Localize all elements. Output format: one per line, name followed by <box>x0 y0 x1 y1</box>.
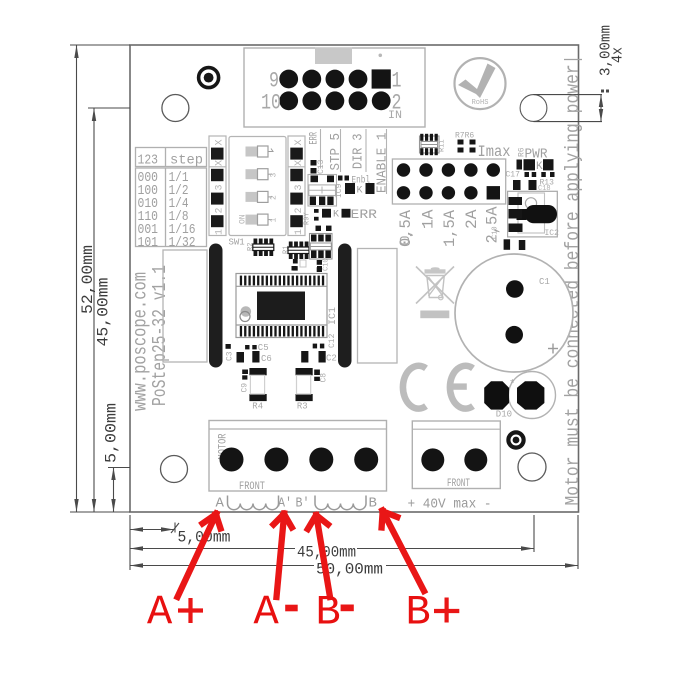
svg-text:45,00mm: 45,00mm <box>95 278 113 347</box>
svg-text:C3: C3 <box>226 351 235 361</box>
svg-text:B: B <box>369 496 377 512</box>
svg-text:Motor must be connected before: Motor must be connected before applying … <box>562 55 584 506</box>
svg-text:R9Y: R9Y <box>304 212 312 225</box>
svg-text:C1: C1 <box>539 277 550 287</box>
svg-text:101: 101 <box>138 235 159 251</box>
svg-text:5,00mm: 5,00mm <box>103 403 121 463</box>
svg-text:C17: C17 <box>506 171 521 180</box>
svg-text:PoStep25-32 v1.1: PoStep25-32 v1.1 <box>149 265 171 406</box>
svg-text:3: 3 <box>294 184 305 190</box>
svg-text:Imax: Imax <box>478 143 511 161</box>
svg-text:FRONT: FRONT <box>239 481 265 493</box>
svg-text:R4: R4 <box>252 402 263 412</box>
svg-text:C5: C5 <box>258 343 269 353</box>
svg-text:2: 2 <box>215 207 226 213</box>
svg-text:C13: C13 <box>317 159 326 174</box>
svg-text:0,5A: 0,5A <box>397 210 415 247</box>
svg-text:*: * <box>509 379 516 391</box>
svg-text:1: 1 <box>215 229 226 235</box>
svg-text:C8: C8 <box>320 373 329 383</box>
svg-text:ERR: ERR <box>309 132 321 145</box>
svg-text:STP 5: STP 5 <box>328 133 344 171</box>
svg-text:B: B <box>406 589 431 637</box>
svg-text:A: A <box>147 589 173 637</box>
svg-text:C12: C12 <box>328 333 337 348</box>
svg-text:K: K <box>333 210 339 221</box>
svg-text:C9: C9 <box>241 383 250 393</box>
svg-text:C2: C2 <box>326 354 337 364</box>
svg-text:2A: 2A <box>463 209 481 229</box>
svg-text:K: K <box>357 186 363 197</box>
svg-text:D10: D10 <box>496 410 512 420</box>
svg-text:ENABLE 1: ENABLE 1 <box>375 133 391 194</box>
svg-text:FRONT: FRONT <box>447 478 470 490</box>
svg-text:ERR: ERR <box>351 208 378 222</box>
svg-text:1,5A: 1,5A <box>441 210 459 247</box>
svg-text:4x: 4x <box>610 47 627 63</box>
svg-text:C6: C6 <box>261 354 272 364</box>
svg-text:B': B' <box>296 496 310 512</box>
svg-text:DIR 3: DIR 3 <box>351 134 367 170</box>
svg-text:step: step <box>170 153 203 169</box>
svg-text:1: 1 <box>270 218 279 223</box>
svg-text:C10: C10 <box>492 226 500 239</box>
svg-text:1: 1 <box>294 229 305 235</box>
svg-text:B: B <box>316 589 341 637</box>
svg-text:X: X <box>215 160 226 166</box>
svg-text:1/32: 1/32 <box>169 235 196 251</box>
svg-text:SW1: SW1 <box>229 238 245 248</box>
svg-text:IC1: IC1 <box>328 307 339 325</box>
svg-text:R3: R3 <box>297 402 308 412</box>
svg-text:10: 10 <box>261 91 281 116</box>
svg-text:3: 3 <box>215 184 226 190</box>
svg-text:R7R6: R7R6 <box>455 132 474 141</box>
svg-text:A: A <box>254 589 280 637</box>
svg-text:A': A' <box>278 496 292 512</box>
svg-text:+ 40V max -: + 40V max - <box>408 497 492 513</box>
svg-text:123: 123 <box>138 153 159 169</box>
svg-text:2: 2 <box>270 195 279 200</box>
svg-text:C10: C10 <box>323 258 331 271</box>
svg-text:IC9: IC9 <box>335 183 344 198</box>
svg-text:K: K <box>536 161 543 173</box>
svg-text:RoHS: RoHS <box>472 99 489 107</box>
svg-text:A: A <box>216 496 225 512</box>
svg-text:3: 3 <box>270 173 279 178</box>
svg-text:X: X <box>215 139 226 145</box>
svg-text:X: X <box>294 139 305 145</box>
svg-text:IN: IN <box>388 110 402 122</box>
svg-text:IC2: IC2 <box>545 229 560 238</box>
svg-text:1A: 1A <box>420 209 438 229</box>
svg-text:R11: R11 <box>439 139 447 152</box>
svg-text:X: X <box>294 160 305 166</box>
